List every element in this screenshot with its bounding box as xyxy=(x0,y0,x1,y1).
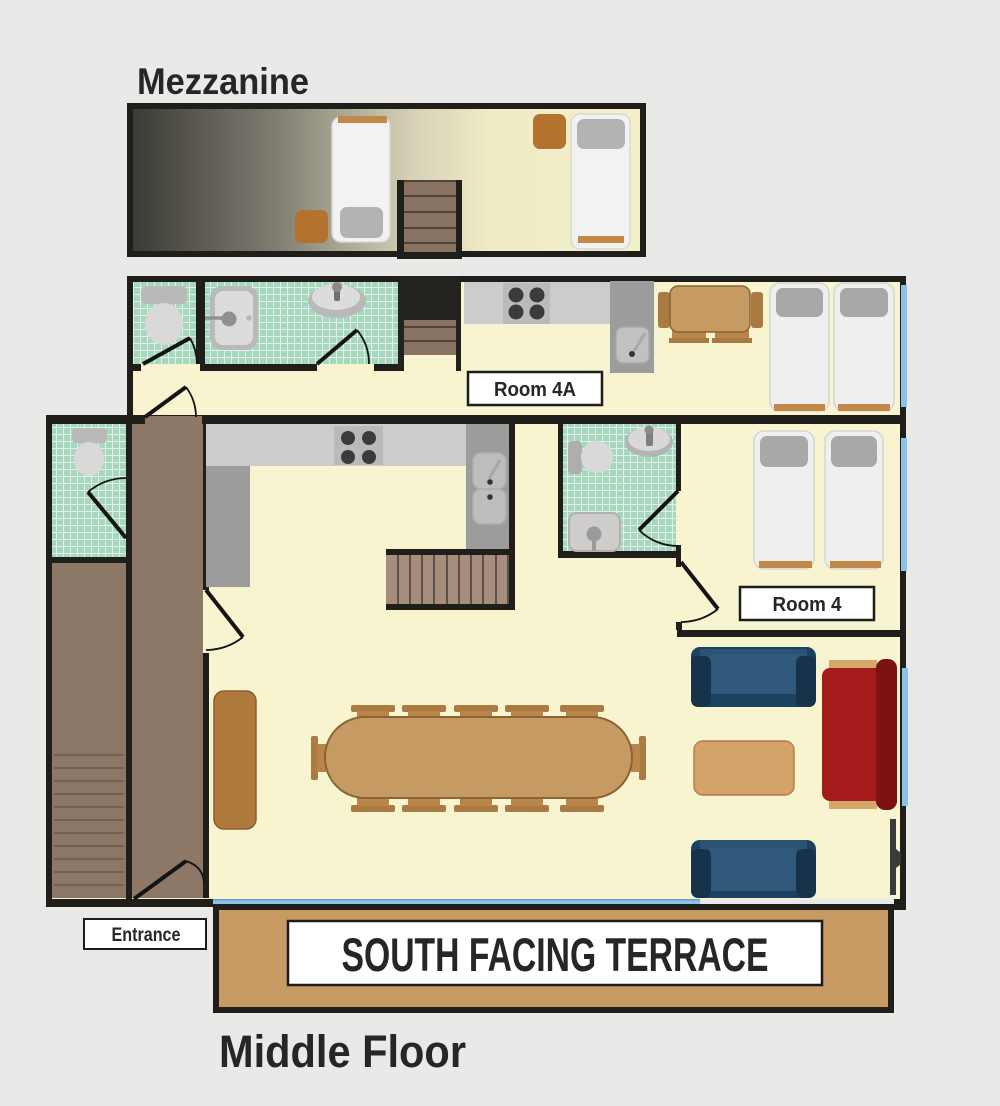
svg-text:Middle Floor: Middle Floor xyxy=(219,1026,466,1077)
svg-text:Room 4A: Room 4A xyxy=(494,379,576,401)
svg-text:Room 4: Room 4 xyxy=(773,594,843,616)
svg-text:Entrance: Entrance xyxy=(112,925,181,946)
svg-text:SOUTH FACING TERRACE: SOUTH FACING TERRACE xyxy=(342,928,769,981)
svg-text:Mezzanine: Mezzanine xyxy=(137,61,309,102)
